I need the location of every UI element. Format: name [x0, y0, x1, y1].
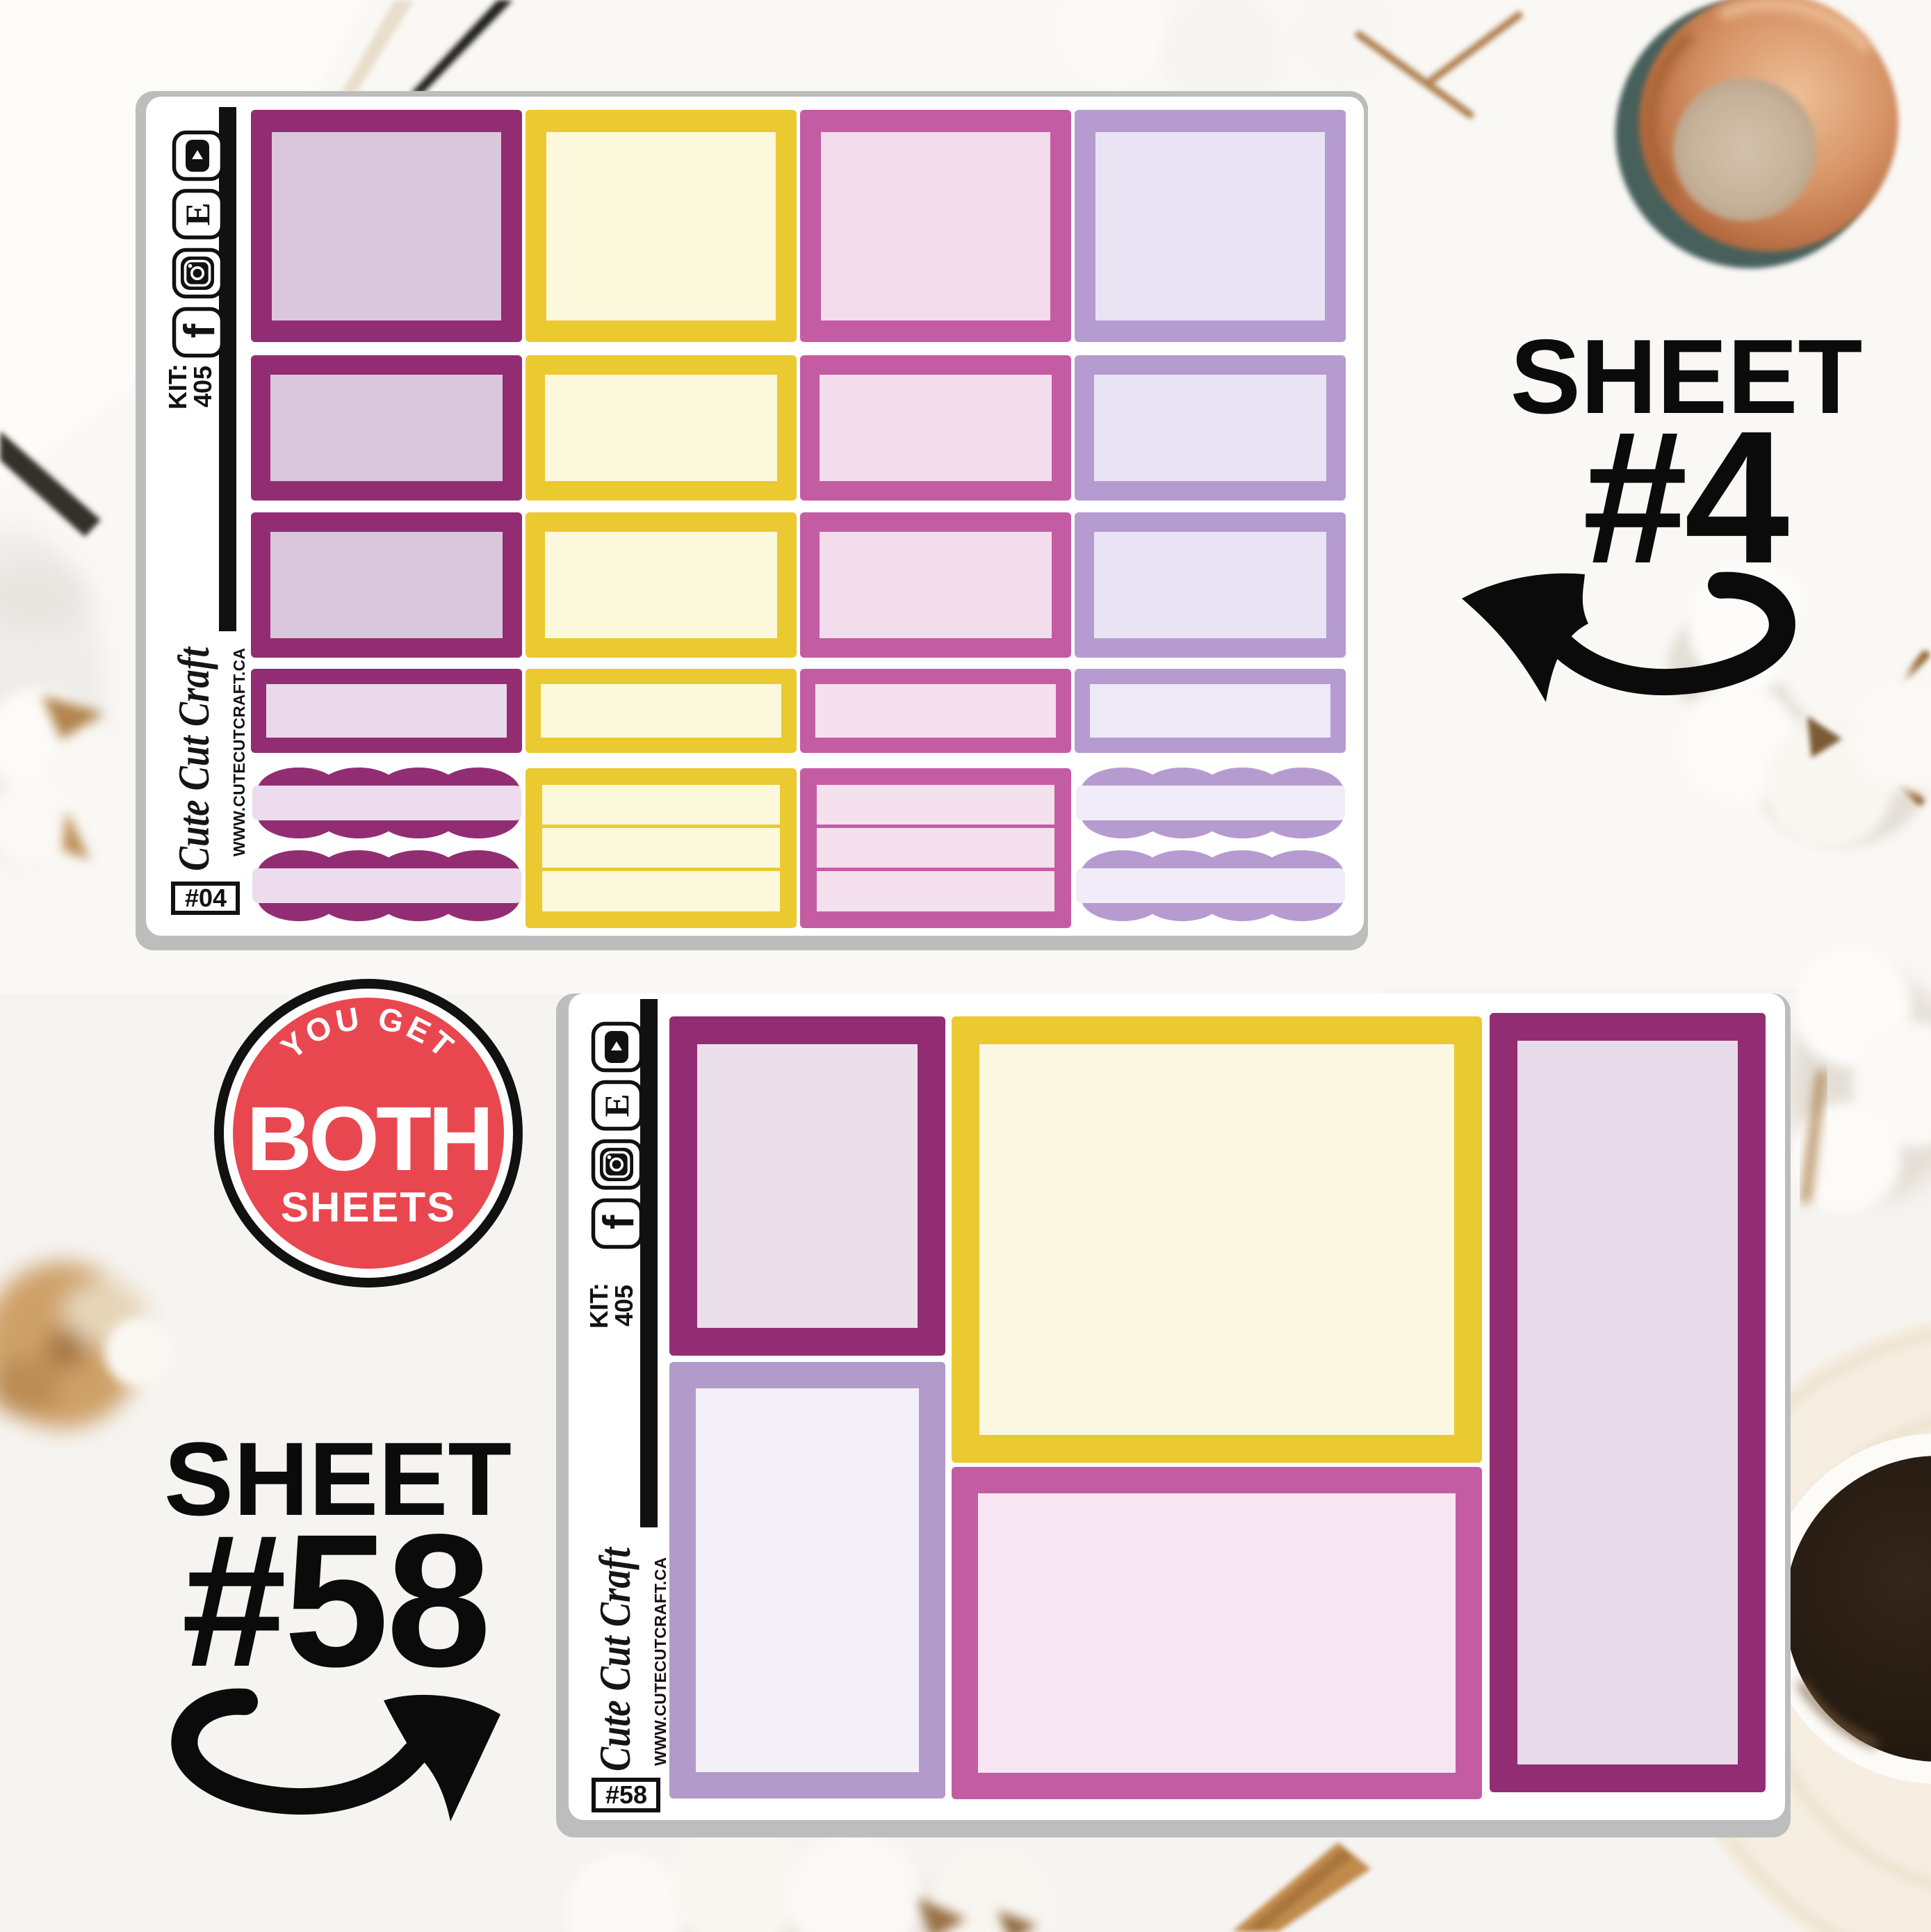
- svg-text:405: 405: [188, 366, 217, 407]
- svg-text:E: E: [178, 202, 217, 225]
- svg-text:KIT:: KIT:: [163, 364, 192, 409]
- svg-text:WWW.CUTECUTCRAFT.CA: WWW.CUTECUTCRAFT.CA: [651, 1557, 669, 1766]
- svg-text:BOTH: BOTH: [246, 1087, 490, 1190]
- svg-text:WWW.CUTECUTCRAFT.CA: WWW.CUTECUTCRAFT.CA: [230, 648, 248, 857]
- svg-text:f: f: [176, 323, 224, 338]
- svg-text:E: E: [597, 1094, 636, 1117]
- svg-text:#04: #04: [185, 884, 227, 912]
- svg-text:SHEETS: SHEETS: [281, 1184, 456, 1231]
- svg-text:#58: #58: [181, 1495, 489, 1706]
- svg-text:#58: #58: [605, 1780, 647, 1809]
- svg-text:KIT:: KIT:: [585, 1283, 613, 1329]
- svg-text:f: f: [595, 1215, 643, 1229]
- svg-text:405: 405: [610, 1285, 638, 1326]
- svg-text:Cute Cut Craft: Cute Cut Craft: [169, 646, 218, 871]
- svg-text:Cute Cut Craft: Cute Cut Craft: [590, 1546, 639, 1771]
- svg-text:#4: #4: [1583, 391, 1791, 603]
